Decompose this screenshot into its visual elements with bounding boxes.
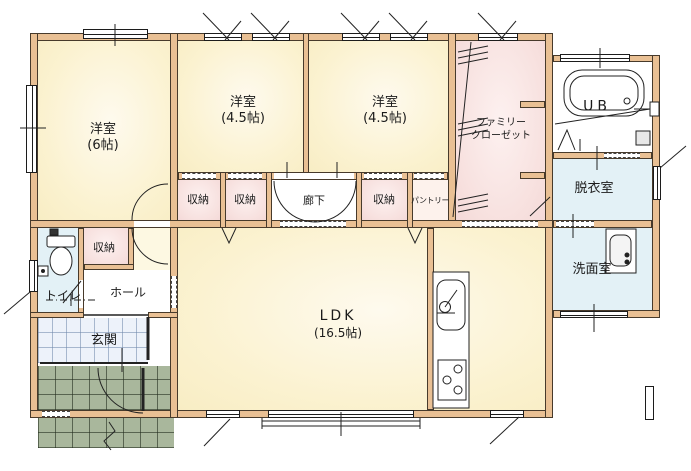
label-washroom: 洗面室 bbox=[572, 262, 611, 278]
label-storage-1: 収納 bbox=[187, 193, 209, 207]
label-entrance: 玄関 bbox=[91, 333, 117, 349]
wall bbox=[303, 33, 309, 180]
label-western45-left: 洋室(4.5帖) bbox=[221, 95, 265, 128]
window bbox=[83, 29, 148, 39]
label-pantry: パントリー bbox=[411, 196, 449, 206]
window bbox=[26, 85, 37, 173]
window bbox=[342, 33, 380, 41]
opening bbox=[228, 173, 262, 179]
entrance-step-opening bbox=[84, 312, 148, 318]
wall bbox=[448, 33, 456, 228]
floor-plan: 洋室(6帖) 洋室(4.5帖) 洋室(4.5帖) ファミリークローゼット UB … bbox=[0, 0, 691, 471]
kitchen-partition-wall bbox=[427, 228, 434, 410]
label-storage-3: 収納 bbox=[373, 193, 395, 207]
window bbox=[252, 33, 290, 41]
wall bbox=[30, 312, 84, 318]
opening bbox=[171, 276, 177, 308]
label-hall: ホール bbox=[110, 286, 146, 301]
label-unit-bath: UB bbox=[583, 98, 611, 116]
label-western45-right: 洋室(4.5帖) bbox=[363, 95, 407, 128]
label-ldk: LDK (16.5帖) bbox=[314, 308, 362, 341]
opening bbox=[462, 221, 538, 227]
window bbox=[560, 311, 628, 318]
label-western6: 洋室(6帖) bbox=[87, 122, 118, 155]
window bbox=[204, 33, 242, 41]
opening bbox=[414, 173, 444, 179]
window bbox=[206, 410, 240, 418]
label-corridor: 廊下 bbox=[303, 194, 325, 208]
opening bbox=[604, 153, 640, 158]
window bbox=[29, 260, 38, 292]
label-storage-2: 収納 bbox=[234, 193, 256, 207]
door-opening bbox=[134, 221, 170, 227]
door-opening bbox=[274, 173, 354, 179]
window bbox=[560, 54, 630, 62]
porch-steps bbox=[38, 418, 174, 448]
exterior-stub bbox=[645, 386, 654, 420]
window bbox=[478, 33, 518, 41]
opening bbox=[182, 173, 216, 179]
window bbox=[390, 33, 428, 41]
room-hall-nook bbox=[134, 228, 170, 270]
closet-shelf-stub bbox=[520, 101, 545, 108]
opening bbox=[556, 221, 594, 227]
opening bbox=[42, 411, 70, 417]
wall bbox=[220, 172, 226, 228]
opening bbox=[280, 221, 346, 227]
label-storage-hall: 収納 bbox=[93, 241, 115, 255]
wall bbox=[84, 264, 134, 270]
closet-shelf-stub bbox=[520, 172, 545, 179]
label-toilet: トイレ bbox=[45, 289, 81, 304]
sliding-window bbox=[268, 410, 414, 418]
label-family-closet: ファミリークローゼット bbox=[471, 118, 531, 143]
window bbox=[490, 410, 524, 418]
wall bbox=[356, 172, 362, 228]
porch-inner bbox=[38, 366, 170, 410]
wall bbox=[266, 172, 272, 228]
label-dressing-room: 脱衣室 bbox=[574, 181, 613, 197]
opening bbox=[364, 173, 402, 179]
wall bbox=[148, 312, 178, 318]
shoe-cabinet bbox=[148, 317, 170, 363]
window bbox=[653, 166, 661, 200]
